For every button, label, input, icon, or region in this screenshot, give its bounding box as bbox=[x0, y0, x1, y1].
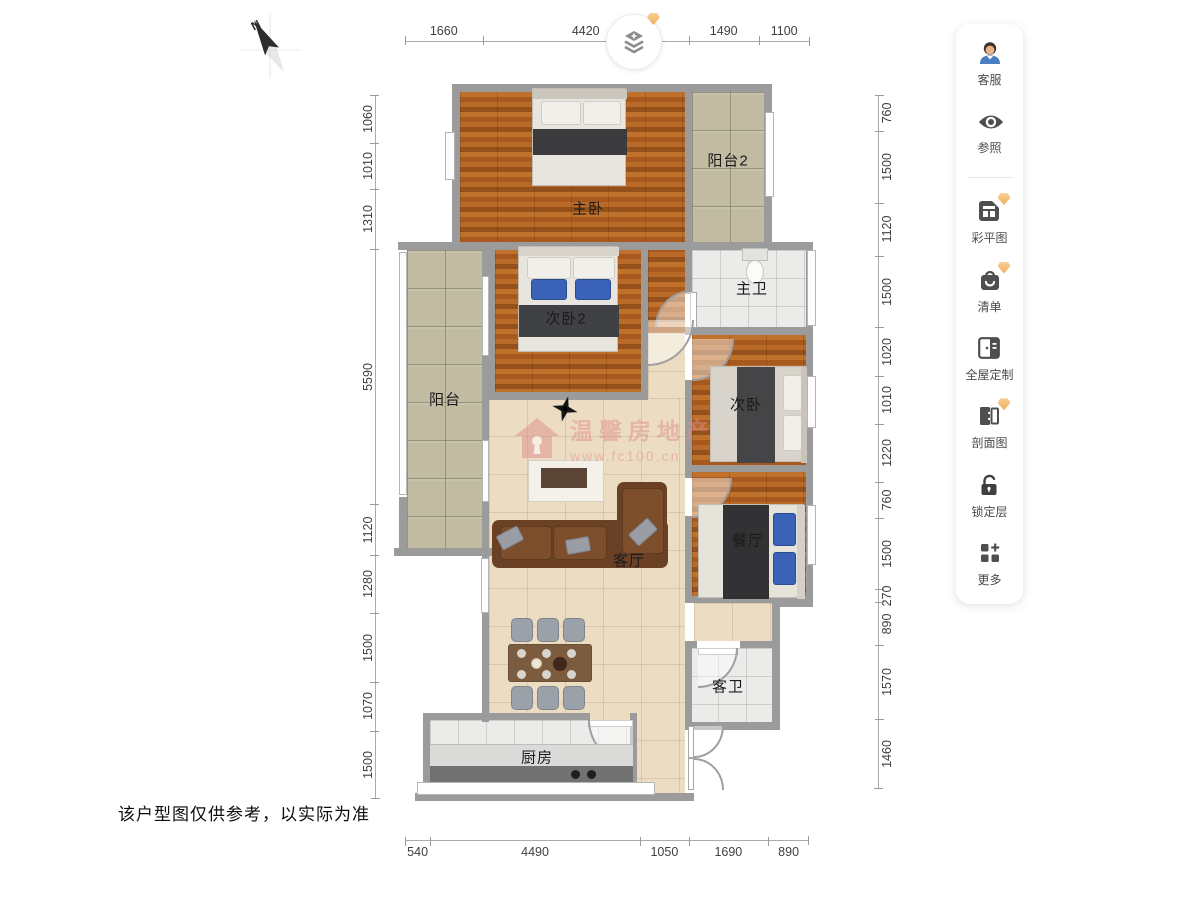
wall bbox=[394, 548, 492, 556]
toolbar-item-customer-service[interactable]: 客服 bbox=[977, 40, 1003, 88]
dining-chair[interactable] bbox=[537, 618, 559, 642]
dining-table[interactable] bbox=[508, 644, 592, 682]
room-label-dining: 餐厅 bbox=[732, 530, 764, 551]
disclaimer-text: 该户型图仅供参考，以实际为准 bbox=[118, 800, 370, 825]
dimension-segment: 1500 bbox=[360, 731, 376, 799]
dimension-segment: 1310 bbox=[360, 189, 376, 249]
premium-diamond-badge bbox=[647, 13, 660, 25]
dimension-segment: 760 bbox=[878, 482, 894, 518]
dimension-segment: 890 bbox=[878, 602, 894, 644]
wall bbox=[740, 641, 780, 648]
toolbar-divider bbox=[967, 177, 1013, 178]
dimension-segment: 890 bbox=[768, 840, 810, 856]
window bbox=[417, 782, 655, 795]
right-toolbar: 客服 参照 bbox=[956, 24, 1023, 604]
support-agent-icon bbox=[977, 40, 1003, 66]
dimension-segment: 1060 bbox=[360, 95, 376, 143]
dimension-segment: 1020 bbox=[878, 327, 894, 376]
cabinet-door-icon bbox=[976, 335, 1002, 361]
wall bbox=[488, 242, 495, 400]
dimension-segment: 1500 bbox=[878, 131, 894, 202]
layers-icon bbox=[619, 27, 649, 57]
dining-chair[interactable] bbox=[563, 686, 585, 710]
room-label-master-bedroom: 主卧 bbox=[572, 198, 604, 219]
dimension-segment: 1570 bbox=[878, 645, 894, 720]
dimension-segment: 5590 bbox=[360, 249, 376, 504]
window bbox=[482, 276, 489, 356]
window bbox=[765, 112, 774, 197]
dimension-segment: 1070 bbox=[360, 682, 376, 731]
north-compass-icon: N bbox=[232, 6, 308, 84]
dimension-segment: 1500 bbox=[878, 518, 894, 589]
toolbar-item-label: 剖面图 bbox=[971, 434, 1007, 451]
toolbar-item-lock-layer[interactable]: 锁定层 bbox=[971, 472, 1007, 520]
toolbar-item-label: 全屋定制 bbox=[965, 366, 1013, 383]
dimension-segment: 540 bbox=[405, 840, 430, 856]
toolbar-item-color-plan[interactable]: 彩平图 bbox=[971, 198, 1007, 246]
room-label-kitchen: 厨房 bbox=[521, 747, 553, 768]
toolbar-item-list[interactable]: 清单 bbox=[977, 267, 1003, 315]
dining-chair[interactable] bbox=[563, 618, 585, 642]
entrance-door-arc[interactable] bbox=[694, 758, 724, 790]
dimension-segment: 1660 bbox=[405, 26, 483, 42]
color-plan-icon bbox=[976, 198, 1002, 224]
room-label-bedroom2: 次卧2 bbox=[545, 308, 586, 329]
kitchen-counter-dark[interactable] bbox=[430, 766, 633, 782]
window bbox=[807, 250, 816, 326]
toolbar-item-label: 彩平图 bbox=[971, 229, 1007, 246]
more-grid-icon bbox=[977, 540, 1003, 566]
toolbar-item-custom-furniture[interactable]: 全屋定制 bbox=[965, 335, 1013, 383]
dimension-rail-right: 7601500112015001020101012207601500270890… bbox=[878, 95, 894, 789]
dimension-segment: 1460 bbox=[878, 719, 894, 788]
toolbar-item-label: 更多 bbox=[977, 571, 1001, 588]
window bbox=[482, 440, 489, 502]
wall bbox=[685, 242, 692, 294]
window bbox=[807, 505, 816, 565]
wall bbox=[423, 713, 590, 720]
window bbox=[807, 376, 816, 428]
room-label-guest-bath: 客卫 bbox=[712, 676, 744, 697]
layers-button[interactable] bbox=[606, 14, 662, 70]
dining-chair[interactable] bbox=[537, 686, 559, 710]
toolbar-item-label: 客服 bbox=[977, 71, 1001, 88]
dimension-segment: 1280 bbox=[360, 555, 376, 613]
room-label-living: 客厅 bbox=[613, 550, 645, 571]
wall bbox=[772, 600, 780, 730]
door-arc[interactable] bbox=[648, 320, 694, 366]
entrance-door-arc[interactable] bbox=[694, 726, 724, 758]
bed-bedroom2[interactable] bbox=[518, 246, 618, 352]
wall bbox=[685, 380, 692, 478]
wall bbox=[641, 242, 648, 400]
toolbar-item-reference[interactable]: 参照 bbox=[977, 108, 1003, 156]
dimension-segment: 1050 bbox=[640, 840, 689, 856]
dimension-segment: 1100 bbox=[759, 26, 810, 42]
dimension-rail-left: 106010101310559011201280150010701500 bbox=[360, 95, 376, 799]
shopping-bag-icon bbox=[977, 267, 1003, 293]
dimension-segment: 1010 bbox=[360, 143, 376, 189]
dimension-segment: 1500 bbox=[878, 256, 894, 327]
dimension-segment: 1010 bbox=[878, 376, 894, 424]
dimension-segment: 1690 bbox=[689, 840, 768, 856]
toolbar-item-label: 清单 bbox=[977, 298, 1001, 315]
room-label-master-bath: 主卫 bbox=[736, 278, 768, 299]
toolbar-item-section-view[interactable]: 剖面图 bbox=[971, 403, 1007, 451]
dimension-segment: 1500 bbox=[360, 613, 376, 681]
window bbox=[399, 252, 407, 495]
bed-dining-room[interactable] bbox=[698, 504, 804, 598]
dimension-segment: 760 bbox=[878, 95, 894, 131]
toolbar-item-more[interactable]: 更多 bbox=[977, 540, 1003, 588]
dining-chair[interactable] bbox=[511, 686, 533, 710]
bed-master[interactable] bbox=[532, 88, 626, 186]
hall-guestbath[interactable] bbox=[694, 603, 772, 641]
eye-icon bbox=[977, 108, 1003, 134]
window bbox=[445, 132, 455, 180]
dimension-segment: 1120 bbox=[360, 504, 376, 555]
window bbox=[481, 558, 489, 613]
section-view-icon bbox=[976, 403, 1002, 429]
floorplan-editor-canvas: N 1660442014901100 540449010501690890 10… bbox=[0, 0, 1200, 900]
dimension-segment: 1490 bbox=[689, 26, 759, 42]
wall bbox=[685, 516, 692, 596]
dimension-segment: 4490 bbox=[430, 840, 640, 856]
stove-burner bbox=[571, 770, 580, 779]
toolbar-item-label: 锁定层 bbox=[971, 503, 1007, 520]
dimension-rail-bottom: 540449010501690890 bbox=[405, 840, 809, 856]
wall bbox=[685, 327, 813, 335]
room-label-balcony: 阳台 bbox=[429, 389, 461, 410]
dimension-segment: 1120 bbox=[878, 203, 894, 256]
wall bbox=[685, 641, 692, 730]
room-label-bedroom: 次卧 bbox=[730, 394, 762, 415]
toolbar-item-label: 参照 bbox=[977, 139, 1001, 156]
wall bbox=[685, 88, 692, 246]
dimension-segment: 1220 bbox=[878, 424, 894, 482]
stove-burner bbox=[587, 770, 596, 779]
wall bbox=[692, 465, 813, 472]
unlocked-padlock-icon bbox=[976, 472, 1002, 498]
dining-chair[interactable] bbox=[511, 618, 533, 642]
tv-console[interactable] bbox=[541, 468, 587, 488]
room-label-balcony2: 阳台2 bbox=[707, 150, 748, 171]
dimension-segment: 270 bbox=[878, 589, 894, 602]
